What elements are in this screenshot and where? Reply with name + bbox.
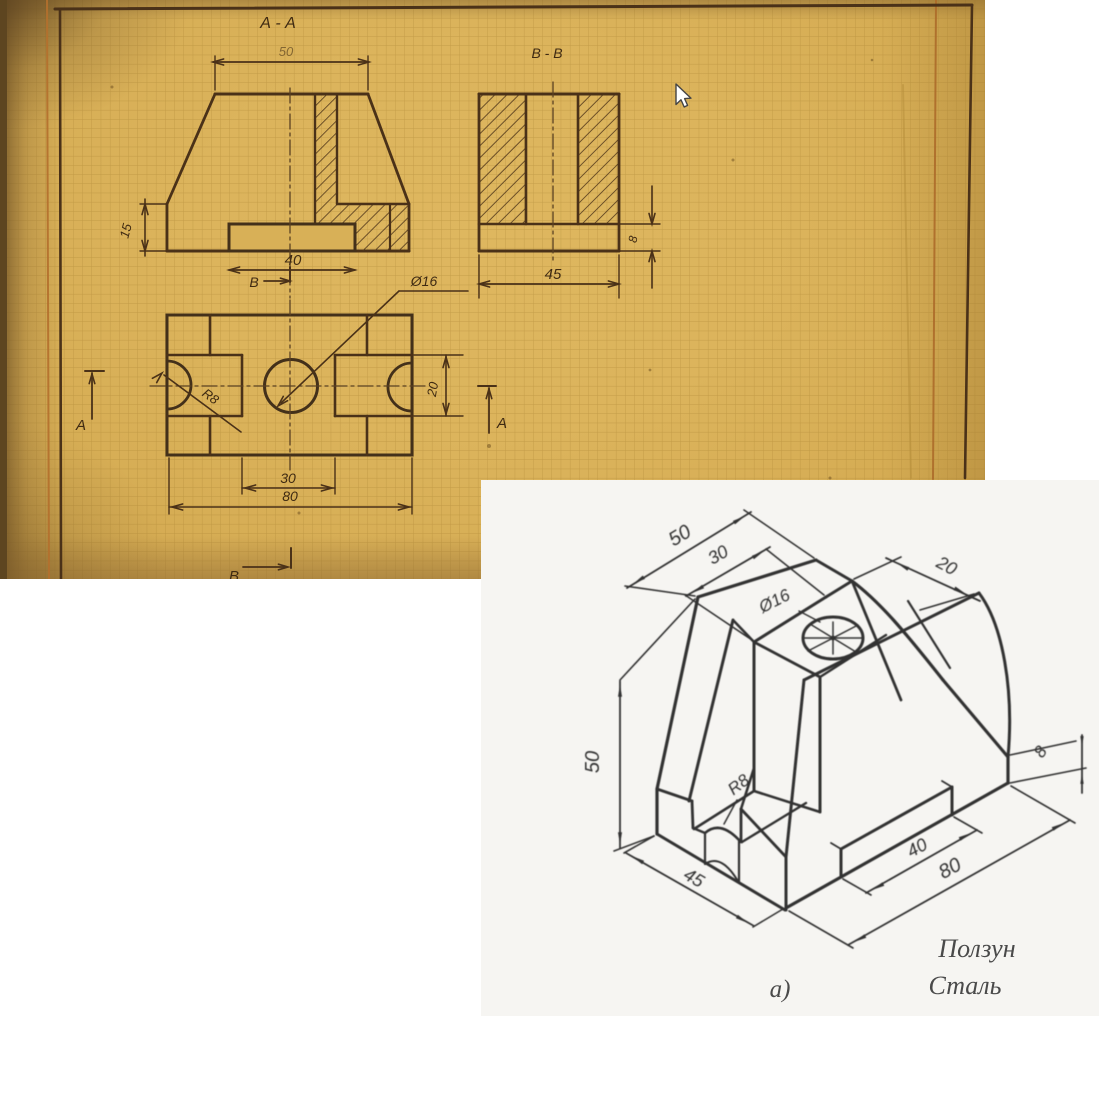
- svg-text:50: 50: [582, 751, 604, 773]
- svg-text:Сталь: Сталь: [929, 971, 1002, 1000]
- svg-text:а): а): [770, 976, 791, 1003]
- svg-text:40: 40: [285, 252, 302, 269]
- svg-text:А - А: А - А: [259, 15, 296, 32]
- svg-text:50: 50: [279, 44, 294, 59]
- svg-text:А: А: [496, 415, 507, 432]
- svg-text:В - В: В - В: [531, 45, 562, 61]
- svg-text:А: А: [75, 417, 86, 434]
- svg-text:45: 45: [545, 266, 562, 283]
- svg-text:80: 80: [282, 488, 298, 504]
- svg-text:Ползун: Ползун: [937, 934, 1015, 963]
- svg-text:30: 30: [280, 470, 296, 486]
- svg-text:В: В: [249, 274, 258, 290]
- svg-text:Ø16: Ø16: [410, 273, 438, 289]
